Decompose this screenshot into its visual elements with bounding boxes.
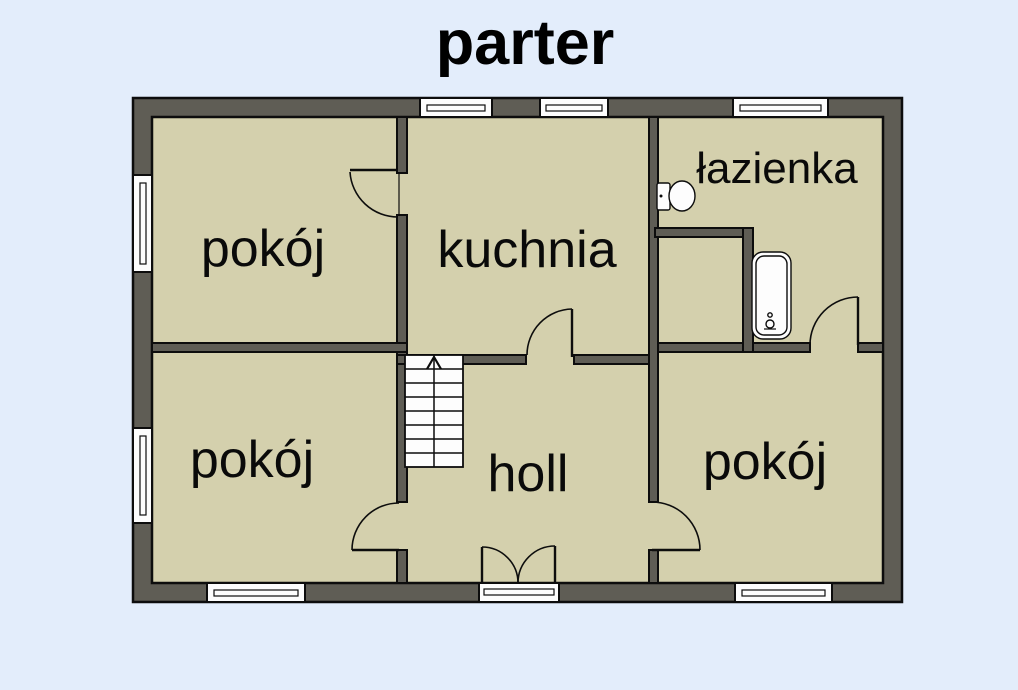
wall-segment-h3-bath-right [858,343,883,352]
floor-plan-page: parter [0,0,1018,690]
window-top-kitchen-right [540,98,608,117]
room-label-pokoj-bottom-right: pokój [703,433,827,491]
bathtub-icon [752,252,791,339]
wall-segment-h3-bath-left [658,343,810,352]
entrance-threshold [479,583,559,602]
wall-segment-h2-kitchen-right [574,355,650,364]
wall-segment-v2-main [649,117,658,502]
window-bottom-left-room [207,583,305,602]
window-top-kitchen-left [420,98,492,117]
toilet-icon [657,181,695,211]
window-left-upper [133,175,152,272]
wall-segment-v2-stub [649,550,658,583]
staircase [405,355,463,467]
wall-segment-v1-stub [397,550,407,583]
wall-segment-h1-left-divider [152,343,407,352]
floor-plan: parter [0,0,1018,690]
window-top-bathroom [733,98,828,117]
room-label-lazienka: łazienka [696,144,858,193]
plan-title: parter [436,8,615,78]
window-bottom-right-room [735,583,832,602]
wall-segment-v1-top [397,117,407,173]
room-label-kuchnia: kuchnia [437,221,616,279]
room-label-holl: holl [488,445,569,503]
window-left-lower [133,428,152,523]
room-label-pokoj-bottom-left: pokój [190,431,314,489]
room-label-pokoj-top-left: pokój [201,220,325,278]
wall-segment-h4-closet-top [655,228,753,237]
